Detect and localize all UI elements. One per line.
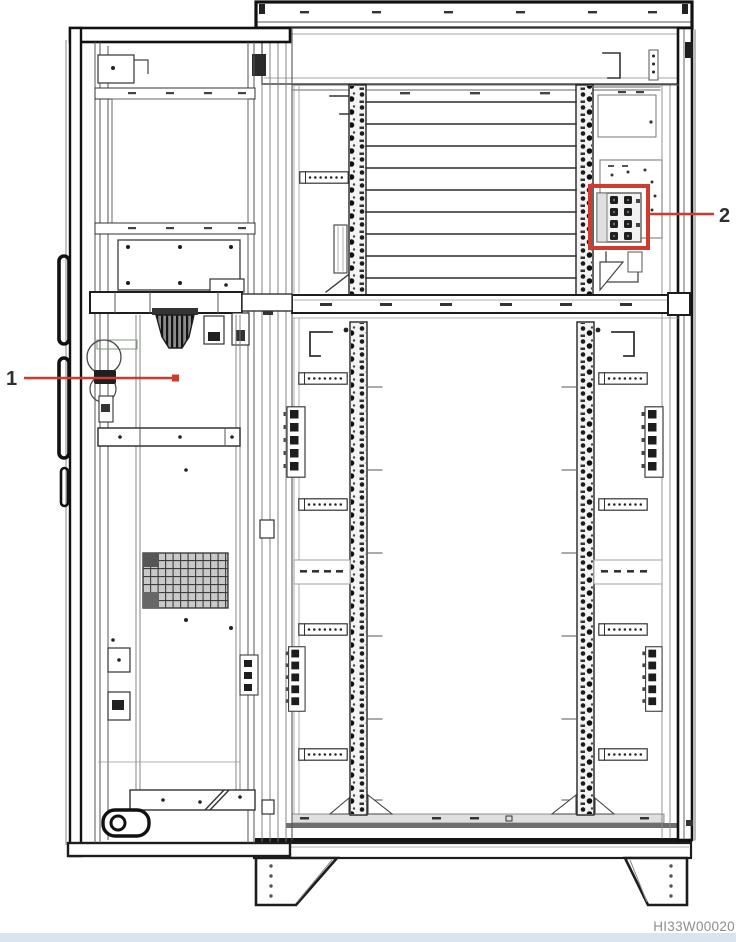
upper-left-bracket [330, 96, 350, 114]
left-leg [256, 858, 337, 905]
lower-left-mounting-rail [350, 322, 367, 815]
cable-bundle [152, 308, 198, 348]
cable-clamp-strip [299, 624, 347, 635]
cable-clamp-strip [299, 499, 347, 510]
callout-2-label: 2 [719, 205, 730, 227]
figure-canvas: 1 2 HI33W00020 [0, 0, 736, 942]
cable-clamp-strip [599, 373, 647, 384]
rail-gusset [552, 795, 576, 814]
door-bottom-bar [130, 790, 255, 810]
top-cover-panel [262, 28, 686, 84]
callout-1-label: 1 [6, 368, 17, 390]
door-bottom-hinge [103, 810, 149, 836]
rail-ticks [367, 387, 577, 800]
plinth [254, 843, 691, 858]
figure-code: HI33W00020 [653, 919, 735, 934]
mid-support-beam [292, 293, 690, 318]
lower-right-hook [612, 332, 634, 356]
right-leg [625, 858, 687, 905]
right-post [678, 28, 692, 840]
cable-clamp-strip [599, 499, 647, 510]
door-junction-post [262, 30, 286, 843]
door-upper-opening [112, 99, 248, 223]
cable-clamp-strip [599, 749, 647, 760]
door-bottom-rail [68, 843, 290, 856]
footer-strip [0, 933, 736, 942]
upper-left-member [334, 225, 347, 273]
door-hinge-profile [59, 256, 69, 506]
door-left-post [70, 28, 81, 856]
lower-left-hook [310, 332, 332, 356]
subrack-slots [366, 102, 576, 278]
upper-left-mounting-rail [349, 85, 366, 295]
left-dash-row [294, 560, 350, 584]
top-rail [256, 2, 692, 28]
callout-1-endpoint [172, 375, 179, 382]
lower-right-mounting-rail [577, 322, 594, 815]
cable-clamp-strip [299, 749, 347, 760]
right-dash-row [594, 560, 662, 584]
door-top-left-box [98, 55, 134, 83]
door-vent-mesh [143, 553, 228, 608]
callout-1: 1 [6, 368, 179, 390]
wall-terminal-block [284, 407, 306, 477]
upper-equipment-bay [292, 50, 678, 295]
left-door-section [59, 28, 292, 856]
wall-terminal-block [642, 407, 664, 477]
grounding-terminal-block [597, 193, 641, 242]
rail-gusset [330, 798, 349, 814]
door-crossrail-mid [95, 223, 255, 234]
door-crossrail-top [95, 88, 255, 99]
rail-gusset [368, 795, 392, 814]
upper-right-column [593, 50, 662, 290]
cabinet-base [254, 814, 692, 905]
floor-front-edge [286, 823, 678, 828]
rail-gusset [595, 798, 614, 814]
main-cabinet [256, 2, 695, 840]
lower-equipment-bay [284, 318, 664, 815]
door-top-rail [70, 28, 290, 42]
wall-terminal-block [285, 647, 305, 712]
wall-terminal-block [642, 647, 662, 712]
cable-clamp-strip [599, 624, 647, 635]
cable-clamp-strip [299, 373, 347, 384]
cabinet-diagram: 1 2 HI33W00020 [0, 0, 736, 942]
cable-clamp-strip [300, 172, 348, 183]
